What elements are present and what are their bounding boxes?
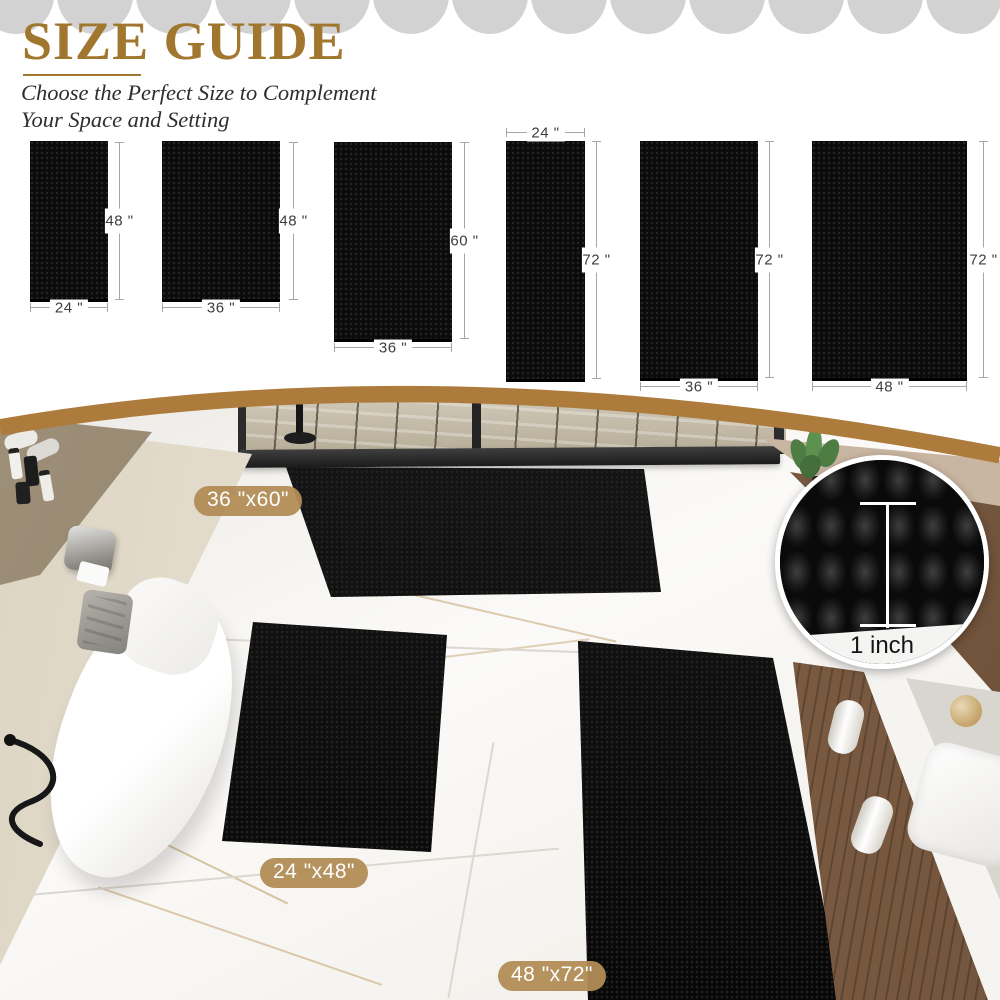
width-label: 36 " — [374, 339, 412, 356]
subtitle-line1: Choose the Perfect Size to Complement — [21, 80, 377, 107]
door-frame-divider — [472, 386, 481, 452]
height-dimension-line: 72 " — [983, 141, 984, 378]
rug-size-tag-24x48: 24 "x48" — [260, 858, 368, 888]
bathroom-photo: 36 "x60" 24 "x48" 48 "x72" 1 inch — [0, 380, 1000, 1000]
size-swatch-24x48 — [30, 141, 108, 302]
height-dimension-line: 48 " — [293, 142, 294, 300]
gold-jar — [950, 695, 982, 727]
scallop-circle — [768, 0, 844, 34]
stand-base — [284, 432, 316, 444]
height-label: 48 " — [104, 209, 134, 234]
width-label: 36 " — [202, 299, 240, 316]
bidet-sprayer-hose — [0, 732, 90, 852]
size-guide-infographic: SIZE GUIDE Choose the Perfect Size to Co… — [0, 0, 1000, 1000]
height-dimension-line: 72 " — [596, 141, 597, 379]
height-label: 60 " — [449, 228, 479, 253]
size-swatch-48x72 — [812, 141, 967, 381]
height-dimension-line: 72 " — [769, 141, 770, 378]
height-label: 72 " — [581, 248, 611, 273]
rug-size-tag-48x72: 48 "x72" — [498, 961, 606, 991]
scallop-circle — [689, 0, 765, 34]
height-dimension-line: 60 " — [464, 142, 465, 339]
width-dimension-line: 36 " — [334, 347, 452, 348]
scallop-circle — [847, 0, 923, 34]
scallop-circle — [373, 0, 449, 34]
width-dimension-line: 24 " — [30, 307, 108, 308]
scallop-circle — [926, 0, 1000, 34]
height-dimension-line: 48 " — [119, 142, 120, 300]
glass-door-tile-view — [238, 385, 786, 451]
size-swatch-24x72 — [506, 141, 585, 382]
height-label: 48 " — [278, 209, 308, 234]
door-threshold — [240, 446, 780, 468]
title-underline — [23, 74, 141, 76]
size-swatch-36x60 — [334, 142, 452, 342]
width-label: 24 " — [526, 124, 564, 141]
subtitle: Choose the Perfect Size to Complement Yo… — [21, 80, 377, 133]
scallop-circle — [610, 0, 686, 34]
pile-height-ruler — [886, 502, 889, 628]
ruler-bottom-cap — [860, 624, 916, 627]
subtitle-line2: Your Space and Setting — [21, 107, 377, 134]
height-label: 72 " — [968, 247, 998, 272]
rug-size-tag-36x60: 36 "x60" — [194, 486, 302, 516]
height-label: 72 " — [754, 247, 784, 272]
door-frame-left — [238, 388, 246, 454]
size-swatch-36x48 — [162, 141, 280, 302]
width-label: 24 " — [50, 299, 88, 316]
pile-height-label: 1 inch — [780, 632, 984, 660]
pile-height-inset: 1 inch — [775, 455, 989, 669]
size-swatch-36x72 — [640, 141, 758, 381]
scallop-circle — [452, 0, 528, 34]
width-dimension-line: 36 " — [162, 307, 280, 308]
scallop-circle — [531, 0, 607, 34]
page-title: SIZE GUIDE — [22, 10, 346, 72]
toiletry-bottle — [15, 482, 31, 505]
width-dimension-line: 24 " — [506, 132, 585, 133]
flush-panel — [76, 589, 134, 655]
ruler-top-cap — [860, 502, 916, 505]
